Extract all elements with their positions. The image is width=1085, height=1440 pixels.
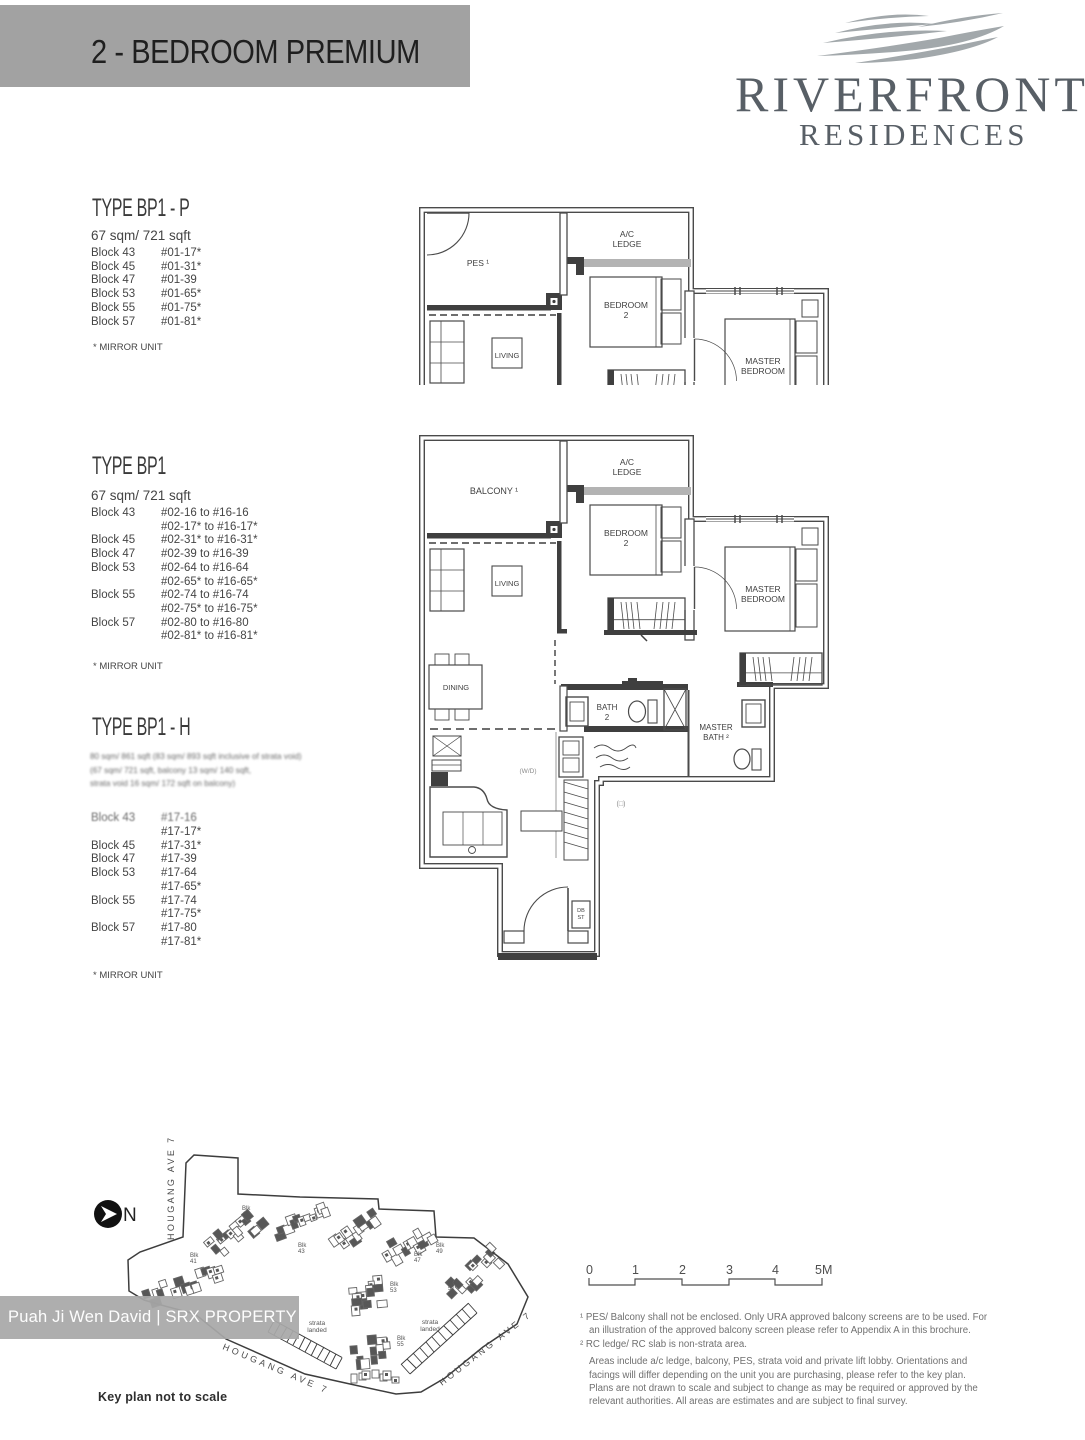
svg-text:BEDROOM: BEDROOM [604, 300, 648, 310]
svg-text:landed: landed [307, 1327, 327, 1334]
svg-text:2: 2 [624, 538, 629, 548]
svg-text:2: 2 [624, 310, 629, 320]
svg-text:DINING: DINING [443, 683, 469, 692]
svg-text:BEDROOM: BEDROOM [741, 366, 785, 376]
svg-text:DB: DB [577, 908, 585, 914]
svg-text:0: 0 [586, 1263, 593, 1277]
svg-text:RESIDENCES: RESIDENCES [799, 117, 1029, 152]
svg-text:A/C: A/C [620, 229, 634, 239]
svg-text:landed: landed [420, 1326, 440, 1333]
svg-text:BALCONY ¹: BALCONY ¹ [470, 486, 518, 496]
svg-text:strata: strata [309, 1320, 326, 1327]
svg-text:43: 43 [298, 1249, 305, 1255]
svg-text:A/C: A/C [620, 457, 634, 467]
svg-text:4: 4 [772, 1263, 779, 1277]
svg-text:BATH ²: BATH ² [703, 733, 729, 742]
svg-text:47: 47 [414, 1258, 421, 1264]
svg-text:(W/D): (W/D) [520, 768, 537, 775]
svg-text:49: 49 [436, 1249, 443, 1255]
svg-text:55: 55 [397, 1342, 404, 1348]
svg-text:5M: 5M [815, 1263, 832, 1277]
svg-text:1: 1 [632, 1263, 639, 1277]
svg-text:2: 2 [605, 713, 610, 722]
svg-text:RIVERFRONT: RIVERFRONT [735, 66, 1085, 122]
svg-text:BEDROOM: BEDROOM [604, 528, 648, 538]
svg-text:LIVING: LIVING [495, 579, 520, 588]
svg-text:PES ¹: PES ¹ [467, 258, 489, 268]
svg-text:MASTER: MASTER [745, 584, 780, 594]
svg-text:3: 3 [726, 1263, 733, 1277]
svg-text:strata: strata [422, 1319, 439, 1326]
svg-text:MASTER: MASTER [745, 356, 780, 366]
svg-text:41: 41 [242, 1212, 249, 1218]
svg-text:(□): (□) [617, 801, 626, 808]
svg-text:LIVING: LIVING [495, 351, 520, 360]
svg-text:LEDGE: LEDGE [613, 467, 642, 477]
svg-text:BATH: BATH [597, 703, 618, 712]
svg-text:53: 53 [390, 1288, 397, 1294]
svg-text:HOUGANG AVE 7: HOUGANG AVE 7 [166, 1135, 176, 1240]
svg-text:LEDGE: LEDGE [613, 239, 642, 249]
svg-text:51: 51 [448, 1286, 455, 1292]
svg-text:MASTER: MASTER [699, 723, 733, 732]
svg-text:HOUGANG AVE 7: HOUGANG AVE 7 [437, 1309, 534, 1388]
svg-text:ST: ST [577, 915, 585, 921]
svg-text:41: 41 [190, 1259, 197, 1265]
svg-text:2: 2 [679, 1263, 686, 1277]
svg-text:BEDROOM: BEDROOM [741, 594, 785, 604]
